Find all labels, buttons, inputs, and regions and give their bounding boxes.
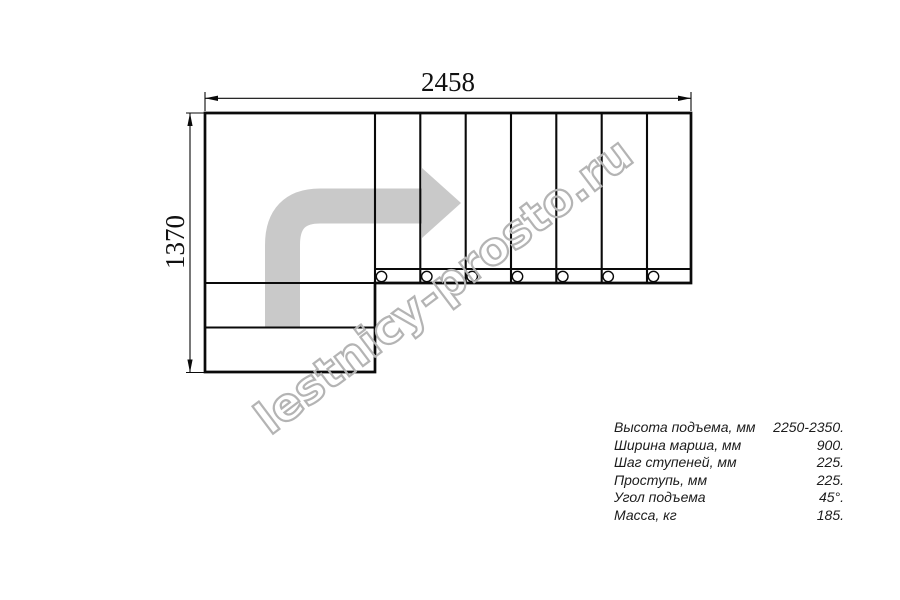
spec-label: Угол подъема [614,489,706,507]
spec-row-angle: Угол подъема 45°. [614,489,844,507]
dimension-height: 1370 [160,113,204,373]
dimension-width-arrow-left-icon [205,96,218,101]
bolt-circle [603,271,613,281]
watermark-text: lestnicy-prosto.ru [245,127,643,445]
spec-value: 225. [817,454,844,472]
spec-value: 45°. [819,489,844,507]
spec-row-flight-width: Ширина марша, мм 900. [614,437,844,455]
dimension-width-value: 2458 [421,67,475,97]
spec-row-step-pitch: Шаг ступеней, мм 225. [614,454,844,472]
bolt-circle [376,271,386,281]
stair-drawing-canvas: 2458 1370 lestnicy-prosto.ru Высота подъ… [0,0,900,600]
spec-label: Ширина марша, мм [614,437,741,455]
spec-value: 185. [817,507,844,525]
bolt-circle [558,271,568,281]
spec-value: 2250-2350. [773,419,844,437]
spec-row-mass: Масса, кг 185. [614,507,844,525]
dimension-height-value: 1370 [160,215,190,269]
spec-label: Шаг ступеней, мм [614,454,737,472]
specs-table: Высота подъема, мм 2250-2350. Ширина мар… [614,419,844,524]
spec-label: Проступь, мм [614,472,707,490]
spec-value: 900. [817,437,844,455]
dimension-height-arrow-bottom-icon [187,360,192,373]
direction-arrow-head-icon [422,168,461,238]
dimension-width-arrow-right-icon [678,96,691,101]
spec-row-height: Высота подъема, мм 2250-2350. [614,419,844,437]
bolt-circle [512,271,522,281]
bolt-circle [648,271,658,281]
dimension-height-arrow-top-icon [187,113,192,126]
spec-label: Масса, кг [614,507,677,525]
spec-label: Высота подъема, мм [614,419,756,437]
spec-value: 225. [817,472,844,490]
spec-row-tread: Проступь, мм 225. [614,472,844,490]
dimension-width: 2458 [205,67,691,111]
